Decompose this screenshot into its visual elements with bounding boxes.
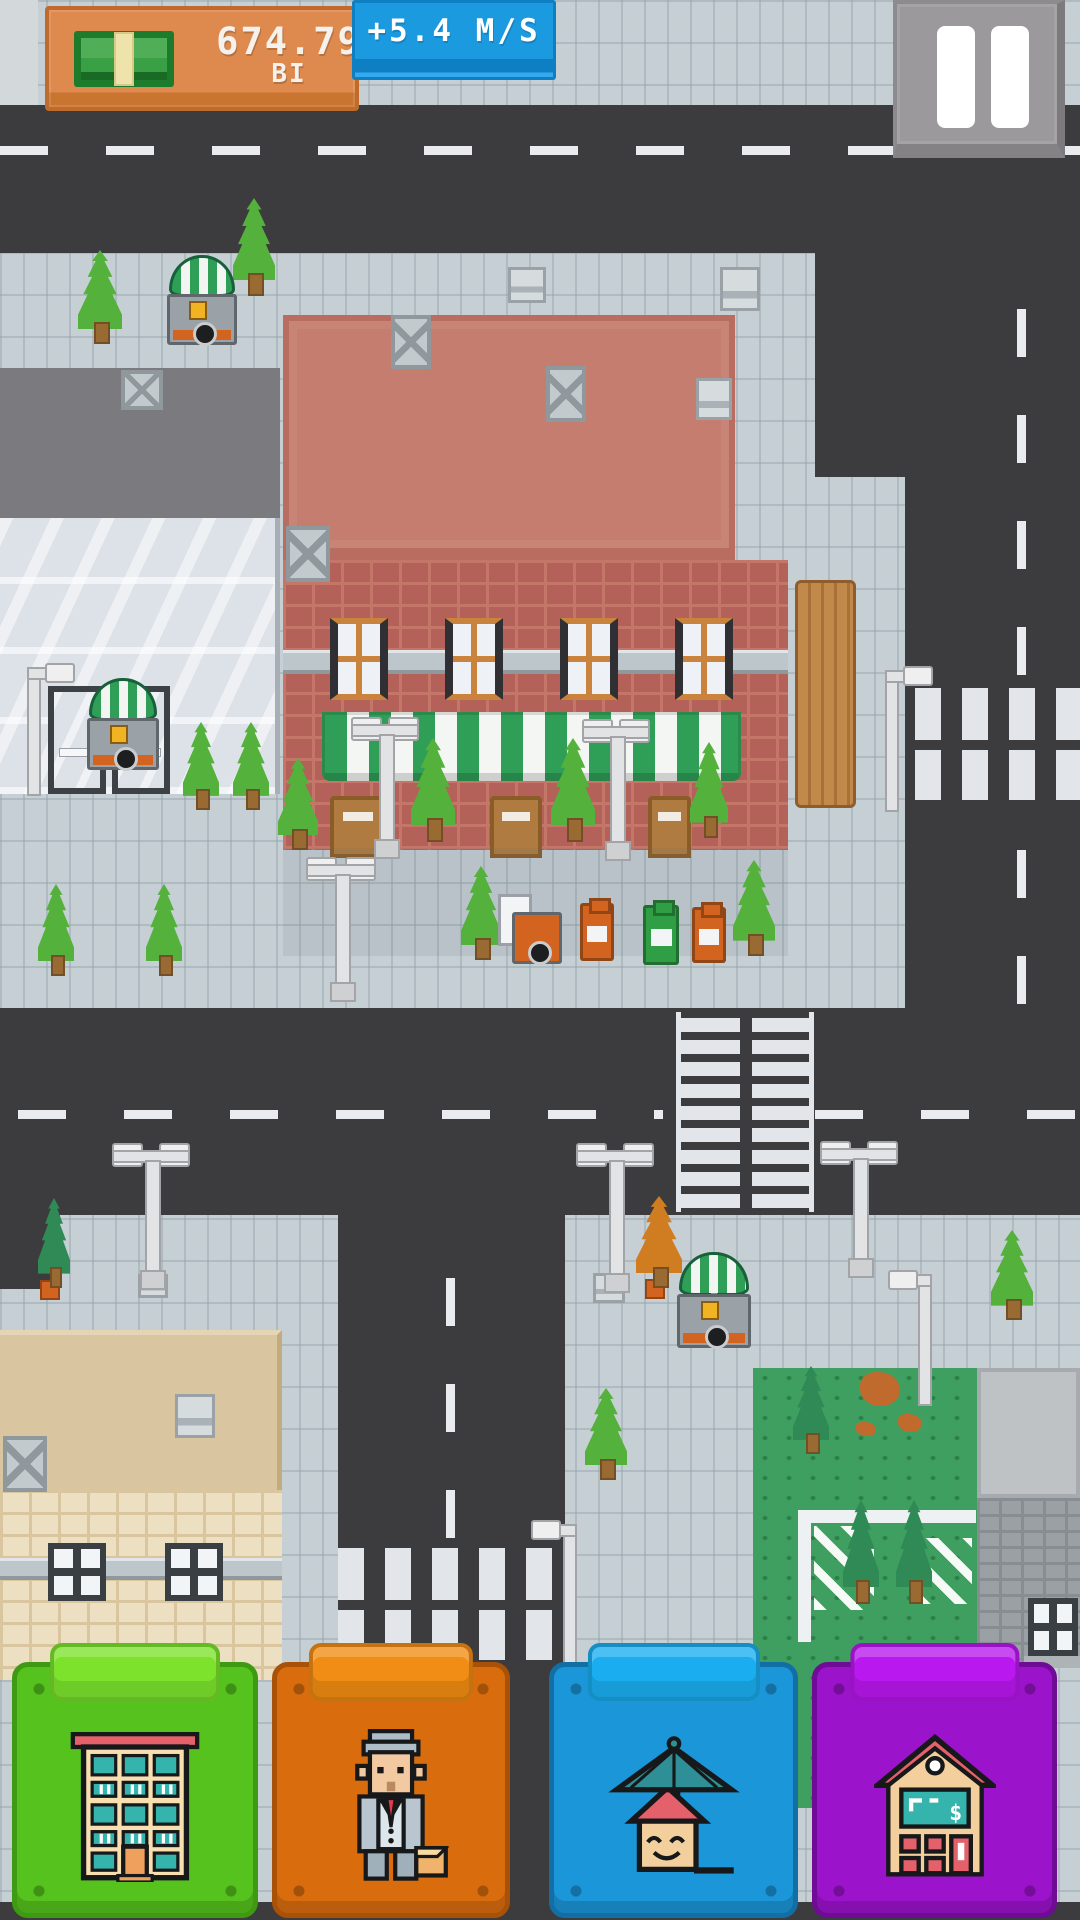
tree [896,1500,932,1604]
trash-bin [643,905,679,965]
tree [991,1230,1033,1320]
road-right-upper [815,105,1080,477]
roof-vent [286,526,330,582]
ac-unit [3,1436,47,1492]
tree [461,866,501,960]
cart-body [167,294,236,345]
lane-line [446,1233,455,1538]
lamp-head [903,666,933,686]
money-panel: 674.79 BI [45,6,359,111]
lamp-pole [609,1160,625,1277]
lamp-pole [379,734,395,843]
cafe-window [675,618,733,700]
house-umbrella-icon [604,1731,744,1883]
svg-text:$: $ [949,1801,962,1826]
button-tab [309,1643,473,1701]
street-lamp [531,1520,579,1682]
apartment-building [0,1330,282,1680]
tree [78,250,122,344]
cafe-window [560,618,618,700]
street-lamp [576,1138,654,1293]
lamp-head [531,1520,561,1540]
cafe-window [445,618,503,700]
lamp-base [374,839,400,859]
park-path [798,1510,811,1642]
cart-body [677,1294,750,1348]
lamp-base [140,1270,166,1290]
apartment-pipe [0,1558,282,1580]
roof-vent [175,1394,215,1438]
street-lamp [25,663,75,796]
lamp-head [888,1270,918,1290]
street-lamp [888,1270,934,1406]
tree [183,722,219,810]
button-tab [50,1643,220,1701]
trash-bin [692,907,726,963]
street-lamp [883,666,933,812]
street-lamp [351,712,419,859]
street-lamp [112,1138,190,1290]
park-path [798,1510,976,1523]
crosswalk-gap [915,740,1080,750]
lamp-base [605,841,631,861]
crosswalk-middle [676,1012,814,1212]
button-tab [850,1643,1019,1701]
roof-vent [508,267,546,303]
roof-vent [391,315,431,369]
vendor-table [512,912,562,964]
money-bill-icon [73,30,175,88]
tree [843,1500,879,1604]
lamp-base [848,1258,874,1278]
lane-line [1017,812,1026,1004]
finance-button[interactable]: $ [812,1662,1057,1918]
cart-goods [701,1301,719,1320]
lamp-head [45,663,75,683]
wooden-fence [795,580,856,808]
lamp-base [330,982,356,1002]
leisure-button[interactable] [549,1662,798,1918]
cart-umbrella [679,1252,749,1296]
tree [38,884,74,976]
cart-umbrella [169,255,236,297]
crosswalk-right [915,688,1080,800]
tree [38,1198,70,1288]
lamp-pole [563,1532,577,1682]
lane-line [18,1110,663,1119]
lamp-pole [335,874,351,986]
tree [690,742,728,838]
lamp-pole [610,736,626,845]
residential-buildings-button[interactable] [12,1662,258,1918]
cart-goods [189,301,207,320]
cafe-window [330,618,388,700]
tree [733,860,775,956]
lamp-pole [145,1160,161,1274]
cart-umbrella [89,678,158,721]
concrete-pad [977,1368,1080,1498]
lamp-pole [853,1158,869,1262]
managers-button[interactable] [272,1662,510,1918]
cafe-roof [283,315,735,560]
tree [278,758,318,850]
income-label: +5.4 M/S [367,13,540,49]
street-cart [86,678,154,770]
house-calculator-icon: $ [874,1731,996,1883]
roof-vent [696,378,732,420]
lamp-pole [27,675,41,796]
trash-bin [580,903,614,961]
roof-vent [121,370,163,410]
roof-vent [546,366,586,422]
bellboy-icon [327,1728,455,1886]
gray-building-window [1028,1598,1078,1656]
apartment-window [165,1543,223,1601]
cart-body [87,718,158,770]
tree [585,1388,627,1480]
sidewalk-patch [0,0,38,106]
apartment-building-icon [69,1732,201,1882]
lamp-pole [918,1282,932,1406]
pause-button[interactable] [893,0,1065,158]
lane-line [1017,255,1026,675]
street-cart [166,255,232,345]
tree [233,198,275,296]
street-lamp [820,1136,898,1278]
crosswalk-gap [740,1012,752,1212]
roof-vent [720,267,760,311]
tree [233,722,269,810]
income-per-second-button[interactable]: +5.4 M/S [352,0,556,80]
button-tab [587,1643,759,1701]
tree [793,1366,829,1454]
street-cart [676,1252,746,1348]
game-viewport: 674.79 BI +5.4 M/S [0,0,1080,1920]
tree [146,884,182,976]
street-lamp [582,714,650,861]
apartment-window [48,1543,106,1601]
lamp-base [604,1273,630,1293]
lane-line [815,1110,1075,1119]
lamp-pole [885,678,899,812]
cart-goods [110,725,128,744]
street-lamp [306,852,376,1002]
